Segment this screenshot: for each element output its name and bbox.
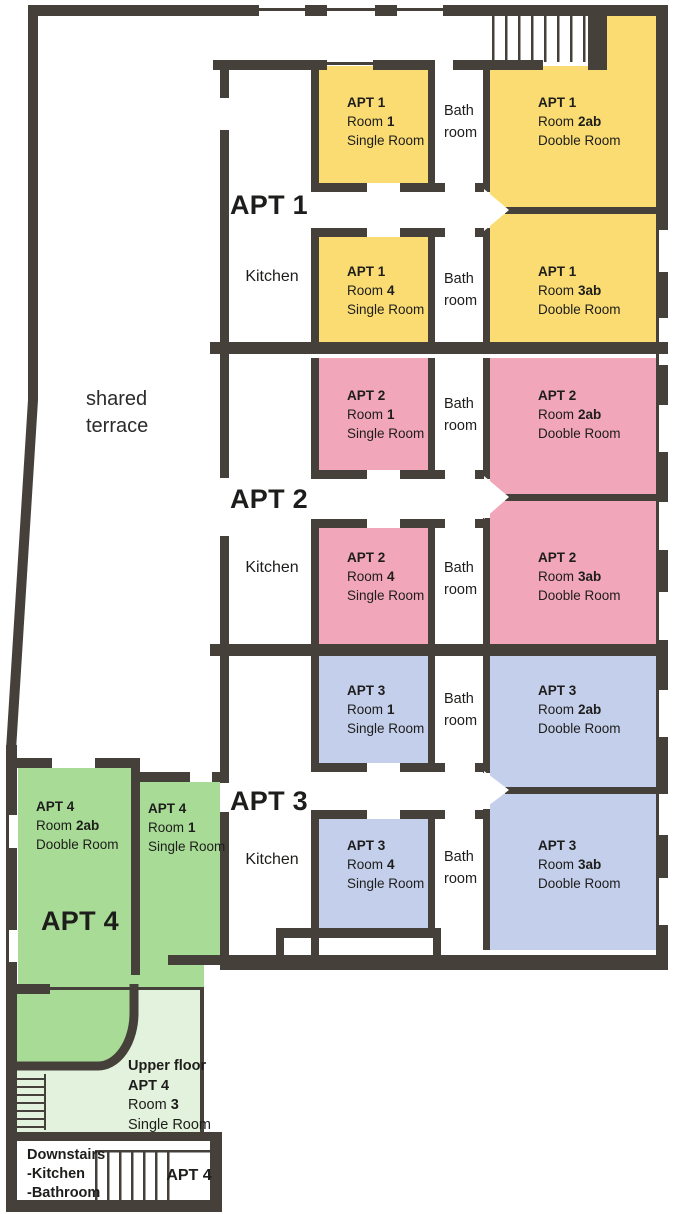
label-apt2-bath-bottom: Bathroom	[444, 557, 477, 601]
apt3-title: APT 3	[225, 786, 313, 817]
label-downstairs: Downstairs -Kitchen -Bathroom	[27, 1146, 105, 1203]
label-apt3-bath-top: Bathroom	[444, 688, 477, 732]
floor-plan: shared terrace APT 1 APT 2 APT 3 APT 4 K…	[0, 0, 675, 1214]
label-apt3-bath-bottom: Bathroom	[444, 846, 477, 890]
label-apt3-room2ab: APT 3 Room2ab Dooble Room	[538, 681, 621, 738]
label-apt1-room4: APT 1 Room4 Single Room	[347, 262, 424, 319]
label-apt4-room2ab: APT 4 Room2ab Dooble Room	[36, 797, 119, 854]
terrace-line1: shared	[86, 386, 148, 413]
label-apt3-room4: APT 3 Room4 Single Room	[347, 836, 424, 893]
terrace-line2: terrace	[86, 413, 148, 440]
label-apt1-bath-bottom: Bathroom	[444, 268, 477, 312]
label-apt4-room1: APT 4 Room1 Single Room	[148, 799, 225, 856]
shared-terrace-label: shared terrace	[86, 386, 148, 440]
label-apt3-room3ab: APT 3 Room3ab Dooble Room	[538, 836, 621, 893]
label-apt2-bath-top: Bathroom	[444, 393, 477, 437]
label-apt2-room3ab: APT 2 Room3ab Dooble Room	[538, 548, 621, 605]
apt3-kitchen-label: Kitchen	[235, 851, 309, 869]
apt1-kitchen-label: Kitchen	[235, 268, 309, 286]
apt2-kitchen-label: Kitchen	[235, 559, 309, 577]
room-apt1-top-strip	[604, 13, 656, 70]
label-apt3-room1: APT 3 Room1 Single Room	[347, 681, 424, 738]
label-apt1-bath-top: Bathroom	[444, 100, 477, 144]
label-apt4-bottom: APT 4	[166, 1167, 212, 1185]
label-apt2-room1: APT 2 Room1 Single Room	[347, 386, 424, 443]
label-apt4-upper-floor: Upper floor APT 4 Room3 Single Room	[128, 1057, 211, 1135]
apt4-title: APT 4	[25, 906, 135, 937]
label-apt1-room2ab: APT 1 Room2ab Dooble Room	[538, 93, 621, 150]
label-apt1-room1: APT 1 Room1 Single Room	[347, 93, 424, 150]
apt2-title: APT 2	[225, 484, 313, 515]
apt1-title: APT 1	[225, 190, 313, 221]
label-apt2-room4: APT 2 Room4 Single Room	[347, 548, 424, 605]
room-apt4-connector	[131, 955, 204, 988]
staircase-top	[492, 14, 586, 62]
label-apt1-room3ab: APT 1 Room3ab Dooble Room	[538, 262, 621, 319]
terrace-diagonal-wall	[11, 5, 33, 750]
label-apt2-room2ab: APT 2 Room2ab Dooble Room	[538, 386, 621, 443]
